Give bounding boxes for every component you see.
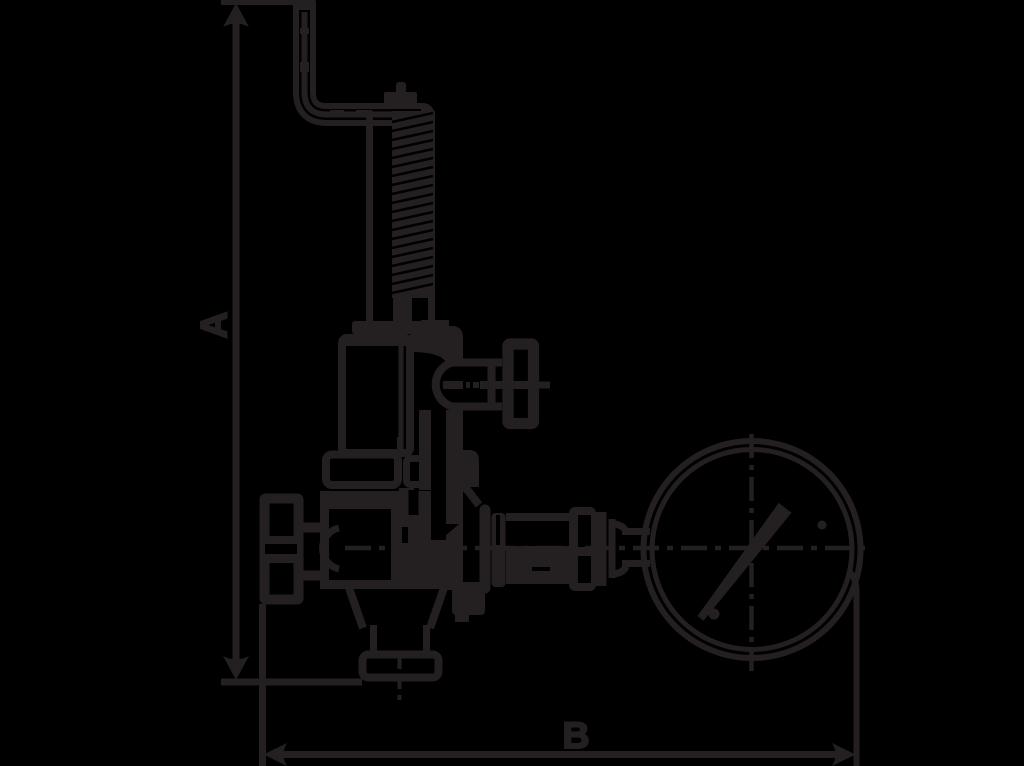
svg-text:A: A xyxy=(194,312,235,339)
svg-text:B: B xyxy=(562,714,589,756)
